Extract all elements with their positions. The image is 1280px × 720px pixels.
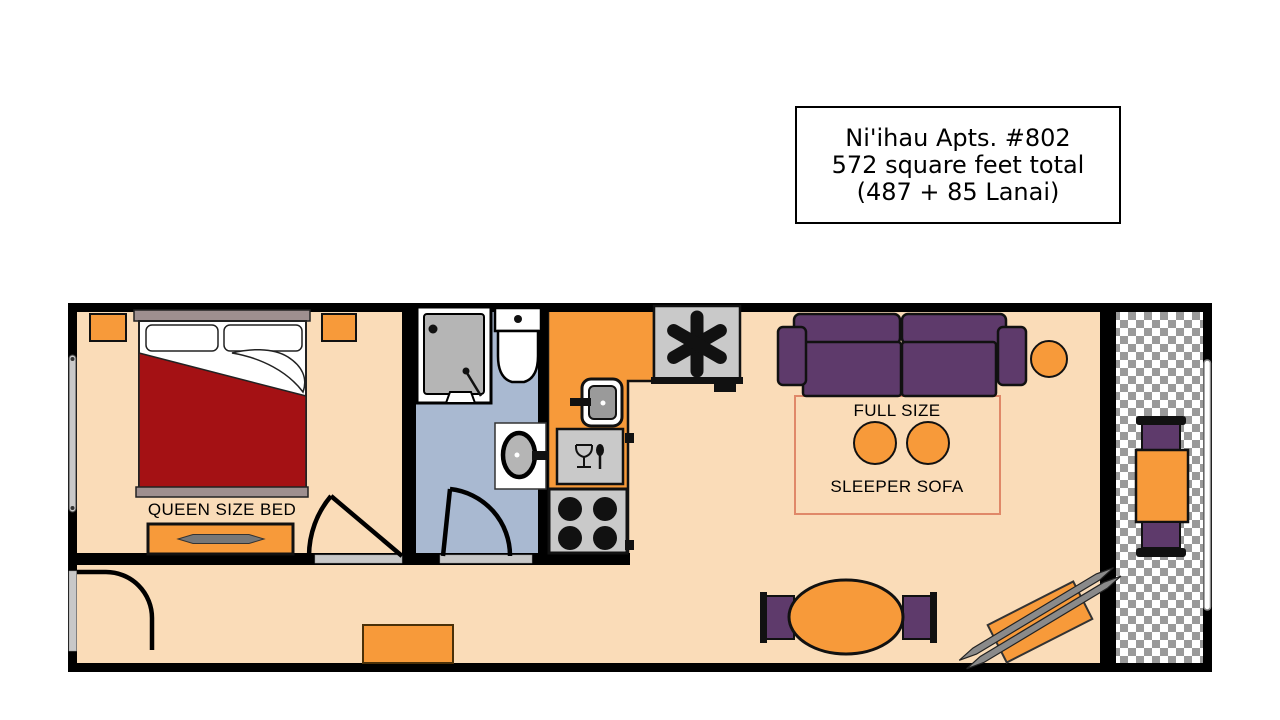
counter-hinge-nub — [625, 433, 634, 443]
footboard — [136, 487, 308, 497]
armrest — [998, 327, 1026, 385]
dining-table — [789, 580, 903, 654]
bedroom-dresser — [148, 524, 293, 554]
nightstand-right — [322, 314, 356, 341]
shower-step — [446, 392, 475, 403]
lanai-table — [1136, 450, 1188, 522]
burner — [558, 497, 582, 521]
headboard — [134, 310, 310, 321]
flush-button-icon — [514, 315, 522, 323]
pillow-left — [146, 325, 218, 351]
ottoman — [854, 422, 896, 464]
dresser-handle — [178, 535, 264, 544]
burner — [593, 497, 617, 521]
wall-bedroom-bathroom — [402, 303, 416, 565]
refrigerator — [651, 306, 743, 392]
dishwasher — [557, 429, 623, 484]
drain-icon — [429, 325, 438, 334]
nightstand-left — [90, 314, 126, 341]
title-line-2: 572 square feet total — [832, 152, 1085, 179]
lanai-chair-back — [1136, 548, 1186, 557]
faucet-icon — [570, 398, 591, 406]
chair-back — [930, 592, 937, 643]
seat-cushion — [902, 342, 996, 396]
faucet-icon — [532, 451, 548, 460]
shower — [417, 307, 491, 403]
bathroom-door-threshold — [440, 555, 532, 563]
toilet-bowl — [498, 331, 538, 382]
seat-cushion — [803, 342, 901, 396]
title-line-1: Ni'ihau Apts. #802 — [845, 125, 1070, 152]
burner — [593, 526, 617, 550]
bathroom-vanity-sink — [495, 423, 548, 489]
entry-door-threshold — [69, 571, 77, 651]
pillow-right — [224, 325, 302, 351]
wall-living-lanai — [1100, 303, 1116, 672]
toilet — [495, 308, 541, 382]
lanai-chair-bottom — [1142, 522, 1180, 548]
title-box: Ni'ihau Apts. #802 572 square feet total… — [795, 106, 1121, 224]
stove — [549, 489, 627, 553]
sleeper-sofa-label-line2: SLEEPER SOFA — [797, 477, 997, 497]
bedroom-window — [69, 355, 76, 512]
floor-plan-page: QUEEN SIZE BED FULL SIZE SLEEPER SOFA Ni… — [0, 0, 1280, 720]
armrest — [778, 327, 806, 385]
low-console — [363, 625, 453, 663]
burner — [558, 526, 582, 550]
back-cushion — [902, 314, 1006, 344]
side-table — [1031, 341, 1067, 377]
queen-bed-label: QUEEN SIZE BED — [142, 500, 302, 520]
dining-chair-right — [903, 596, 931, 639]
ottoman — [907, 422, 949, 464]
back-cushion — [794, 314, 900, 344]
counter-hinge-nub — [625, 540, 634, 550]
lanai-chair-top — [1142, 424, 1180, 450]
lanai-window — [1204, 360, 1211, 610]
sleeper-sofa-label-line1: FULL SIZE — [797, 401, 997, 421]
lanai-set — [1136, 416, 1188, 557]
bedroom-door-threshold — [315, 555, 402, 563]
queen-bed — [134, 310, 310, 497]
title-line-3: (487 + 85 Lanai) — [857, 179, 1060, 206]
